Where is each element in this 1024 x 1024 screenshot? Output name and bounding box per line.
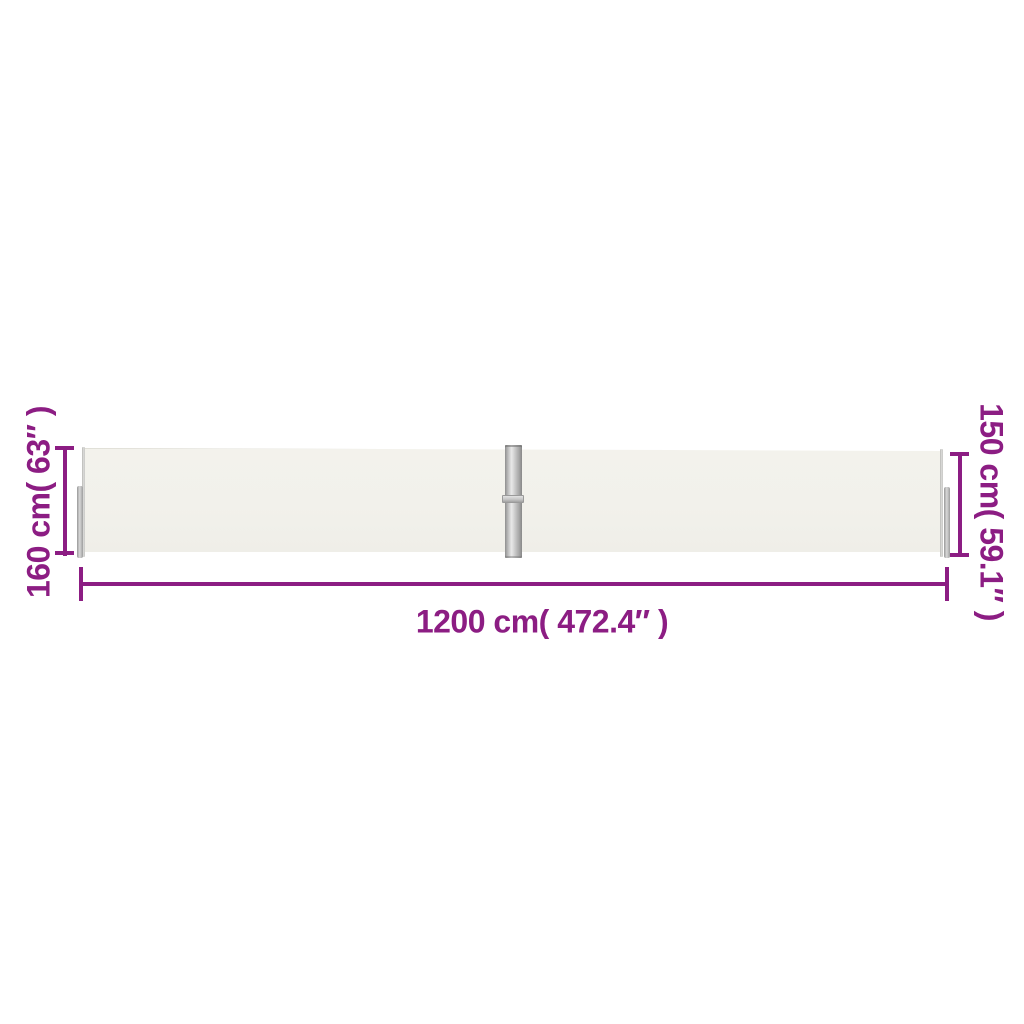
- bottom-width-label: 1200 cm( 472.4″ ): [416, 604, 668, 641]
- right-dimension-cap-bottom: [950, 553, 969, 557]
- right-dimension-cap-top: [950, 452, 969, 456]
- bottom-dimension-cap-left: [79, 567, 83, 601]
- awning-center-pole-collar: [502, 495, 524, 503]
- bottom-dimension-line: [81, 582, 947, 586]
- left-height-label: 160 cm( 63″ ): [21, 406, 58, 598]
- right-dimension-line: [958, 453, 962, 557]
- right-height-label: 150 cm( 59.1″ ): [973, 403, 1010, 621]
- left-dimension-cap-top: [55, 446, 74, 450]
- awning-right-edge: [940, 449, 943, 557]
- left-dimension-line: [63, 447, 67, 556]
- product-dimension-diagram: 160 cm( 63″ ) 150 cm( 59.1″ ) 1200 cm( 4…: [0, 0, 1024, 1024]
- awning-right-post: [944, 487, 950, 558]
- bottom-dimension-cap-right: [945, 567, 949, 601]
- awning-left-post: [77, 486, 83, 558]
- left-dimension-cap-bottom: [55, 551, 74, 555]
